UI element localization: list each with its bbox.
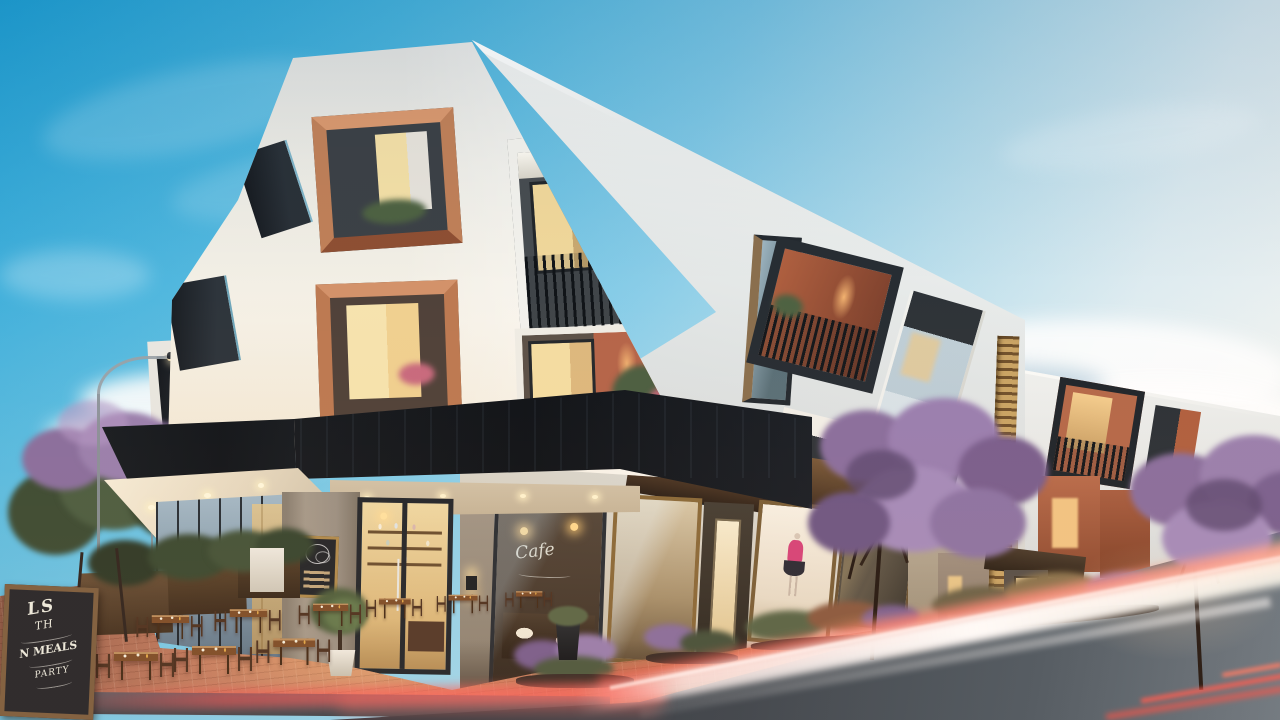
dining-set (172, 624, 262, 684)
dining-set (365, 582, 430, 625)
dining-set (254, 618, 340, 675)
pot-plant (548, 606, 588, 626)
downlight (520, 494, 526, 498)
pendant-lamp (380, 513, 387, 520)
jacaranda-foliage (808, 492, 890, 554)
cafe-table (379, 598, 411, 618)
sign-board: LS TH N MEALS PARTY (0, 584, 99, 720)
cafe-chair (544, 592, 552, 606)
downlight (592, 495, 598, 499)
cafe-chair (238, 647, 252, 671)
cafe-chair (160, 653, 174, 677)
downlight (258, 483, 264, 488)
aframe-sign: LS TH N MEALS PARTY (0, 582, 104, 720)
sill-plants (361, 197, 427, 225)
window-glow (346, 303, 421, 399)
terracotta-box-window (311, 107, 462, 253)
downlight (148, 505, 155, 510)
jacaranda-shadow (1186, 479, 1262, 531)
dining-set (94, 630, 184, 690)
chalk-circle (315, 551, 330, 564)
dusk-streetscape-render: Cafe (0, 0, 1280, 720)
sign-chalk-content: LS TH N MEALS PARTY (0, 591, 97, 715)
cafe-table (114, 652, 158, 680)
jacaranda-shadow (846, 450, 916, 500)
cafe-table (273, 638, 315, 665)
downlight (204, 493, 211, 498)
sill-flowers (398, 362, 435, 385)
cafe-chair (505, 592, 513, 606)
cafe-chair (317, 639, 330, 662)
feature-pot (546, 606, 590, 662)
cafe-table (192, 646, 236, 674)
pot-body (554, 620, 582, 660)
jacaranda-foliage (930, 488, 1026, 558)
cafe-table (449, 595, 478, 613)
counter-silhouette (408, 621, 445, 652)
cloud-wisp (0, 250, 150, 300)
cafe-chair (479, 595, 488, 611)
dining-set (435, 580, 494, 620)
cafe-table (516, 591, 542, 608)
downlight (440, 494, 446, 498)
white-planter (250, 548, 284, 592)
cafe-chair (412, 599, 422, 616)
sconce-glow (828, 272, 860, 322)
cafe-chair (350, 604, 361, 623)
cafe-chair (437, 596, 446, 612)
pavement-red-reflection (340, 694, 660, 714)
